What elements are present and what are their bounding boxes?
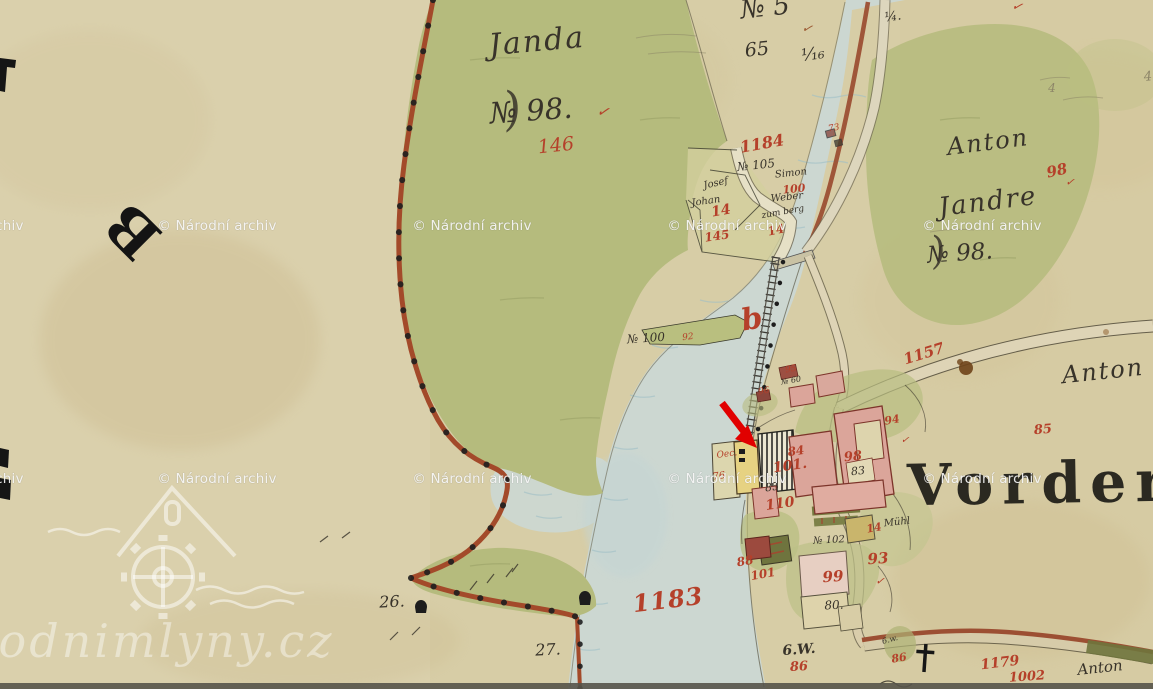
building-tan-south — [838, 604, 863, 631]
boundary-stone-27 — [579, 591, 591, 605]
farm-courtyard — [854, 420, 884, 462]
building-tiny-red-b — [756, 390, 771, 402]
cadastral-map: Janda)№ 98.✓146№ 5¼.✓65¹⁄₁₆1184№ 105Simo… — [0, 0, 1153, 689]
building-yellow-house — [734, 440, 760, 494]
building-north-b — [816, 371, 845, 397]
hamlet-building-b — [834, 139, 842, 147]
parcel-99 — [799, 551, 849, 599]
building-north-a — [789, 384, 815, 407]
partial-letter-fragment-low — [0, 478, 11, 500]
scan-edge — [0, 683, 1153, 689]
map-canvas — [0, 0, 1153, 689]
building-west-pink — [752, 486, 779, 519]
building-tan-mid — [845, 515, 875, 543]
building-dark-red — [745, 536, 771, 560]
garden-cross — [884, 626, 916, 662]
partial-letter-fragment-mid — [0, 448, 9, 468]
